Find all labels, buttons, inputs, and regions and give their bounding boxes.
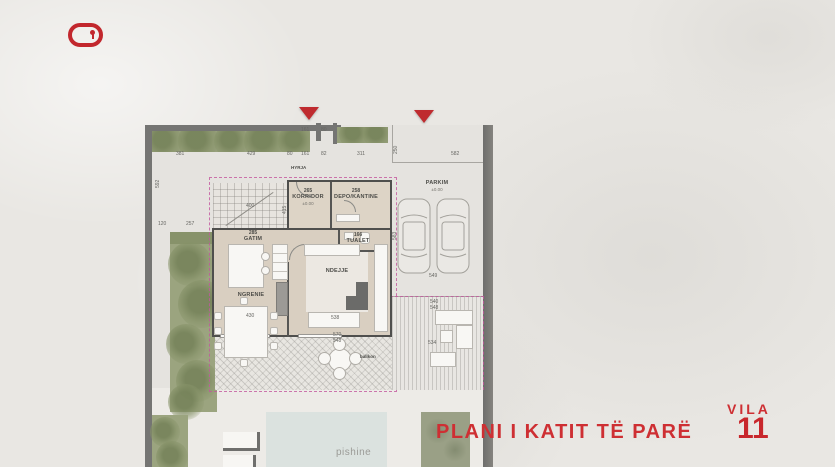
dimension-label: 583 [393, 232, 398, 240]
lounge-sofa [456, 325, 473, 349]
dimension-label: 311 [357, 152, 365, 157]
kitchen-island [228, 244, 264, 288]
pool-steps [223, 432, 260, 451]
parked-cars [396, 196, 474, 276]
dimension-label: 120 [158, 222, 166, 227]
partition-wall [330, 182, 332, 228]
dimension-label: 400 [246, 204, 254, 209]
dimension-label: 415 [283, 206, 288, 214]
pool-steps [223, 455, 256, 467]
entrance-hedge [337, 127, 388, 143]
keyhole-icon [90, 30, 95, 35]
label-ballkon: ballkon [360, 354, 376, 359]
dimension-label: 257 [186, 222, 194, 227]
balcony-chair [333, 367, 346, 380]
room-label-tualet: 166 TUALET [347, 232, 370, 245]
lounge-sofa [435, 310, 473, 325]
label-parkim: PARKIM ±0.00 [426, 180, 449, 193]
pool-label: pishine [336, 447, 371, 458]
dimension-label: 548 [430, 306, 438, 311]
room-label-hyrja: HYRJA [291, 165, 306, 170]
top-hedge [152, 131, 310, 152]
lounge-table [440, 330, 453, 343]
chair [214, 342, 222, 350]
dimension-label: 82 [321, 152, 327, 157]
chair [240, 359, 248, 367]
balcony-chair [318, 352, 331, 365]
entrance-marker-icon [414, 110, 434, 123]
shelf [336, 214, 360, 222]
kitchen-counter [272, 244, 288, 280]
dimension-label: 534 [428, 341, 436, 346]
dimension-label: 592 [156, 180, 161, 188]
dimension-label: 80 [287, 152, 293, 157]
floor-plan-canvas: pishine [0, 0, 835, 467]
chair [214, 327, 222, 335]
stool [261, 266, 270, 275]
villa-number: 11 [737, 416, 769, 442]
room-label-gatim: 285 GATIM [244, 230, 262, 243]
entrance-marker-icon [299, 107, 319, 120]
dimension-label: 538 [331, 316, 339, 321]
dimension-label: 161 [301, 128, 309, 133]
parking-edge-line [392, 162, 483, 163]
appliance-block [276, 282, 288, 316]
left-boundary-wall [145, 125, 152, 467]
stool [261, 252, 270, 261]
plot-divider-line [392, 125, 393, 163]
lounge-chair [430, 352, 456, 367]
chair [270, 312, 278, 320]
pool [266, 412, 387, 467]
dimension-label: 161 [301, 152, 309, 157]
lower-garden [152, 415, 188, 467]
room-label-korridor: 265 KORRIDOR ±0.00 [292, 188, 324, 207]
chair [270, 342, 278, 350]
dimension-label: 381 [176, 152, 184, 157]
plan-title: PLANI I KATIT TË PARË [436, 421, 692, 444]
dimension-label: 582 [451, 152, 459, 157]
sofa [304, 244, 360, 256]
dimension-label: 250 [394, 146, 399, 154]
brand-logo [68, 23, 103, 47]
right-boundary-wall [483, 125, 493, 467]
dimension-label: 429 [247, 152, 255, 157]
dimension-label: 80 [321, 128, 327, 133]
room-label-ngrenie: NGRENIE [238, 292, 264, 299]
tv-unit [356, 282, 368, 310]
dimension-label: 430 [246, 314, 254, 319]
dimension-label: 548 [333, 339, 341, 344]
room-label-depo: 258 DEPO/KANTINE [334, 188, 378, 201]
chair [270, 327, 278, 335]
sideboard [374, 244, 388, 332]
dimension-label: 549 [429, 274, 437, 279]
room-label-ndejje: NDEJJE [326, 268, 349, 275]
chair [214, 312, 222, 320]
